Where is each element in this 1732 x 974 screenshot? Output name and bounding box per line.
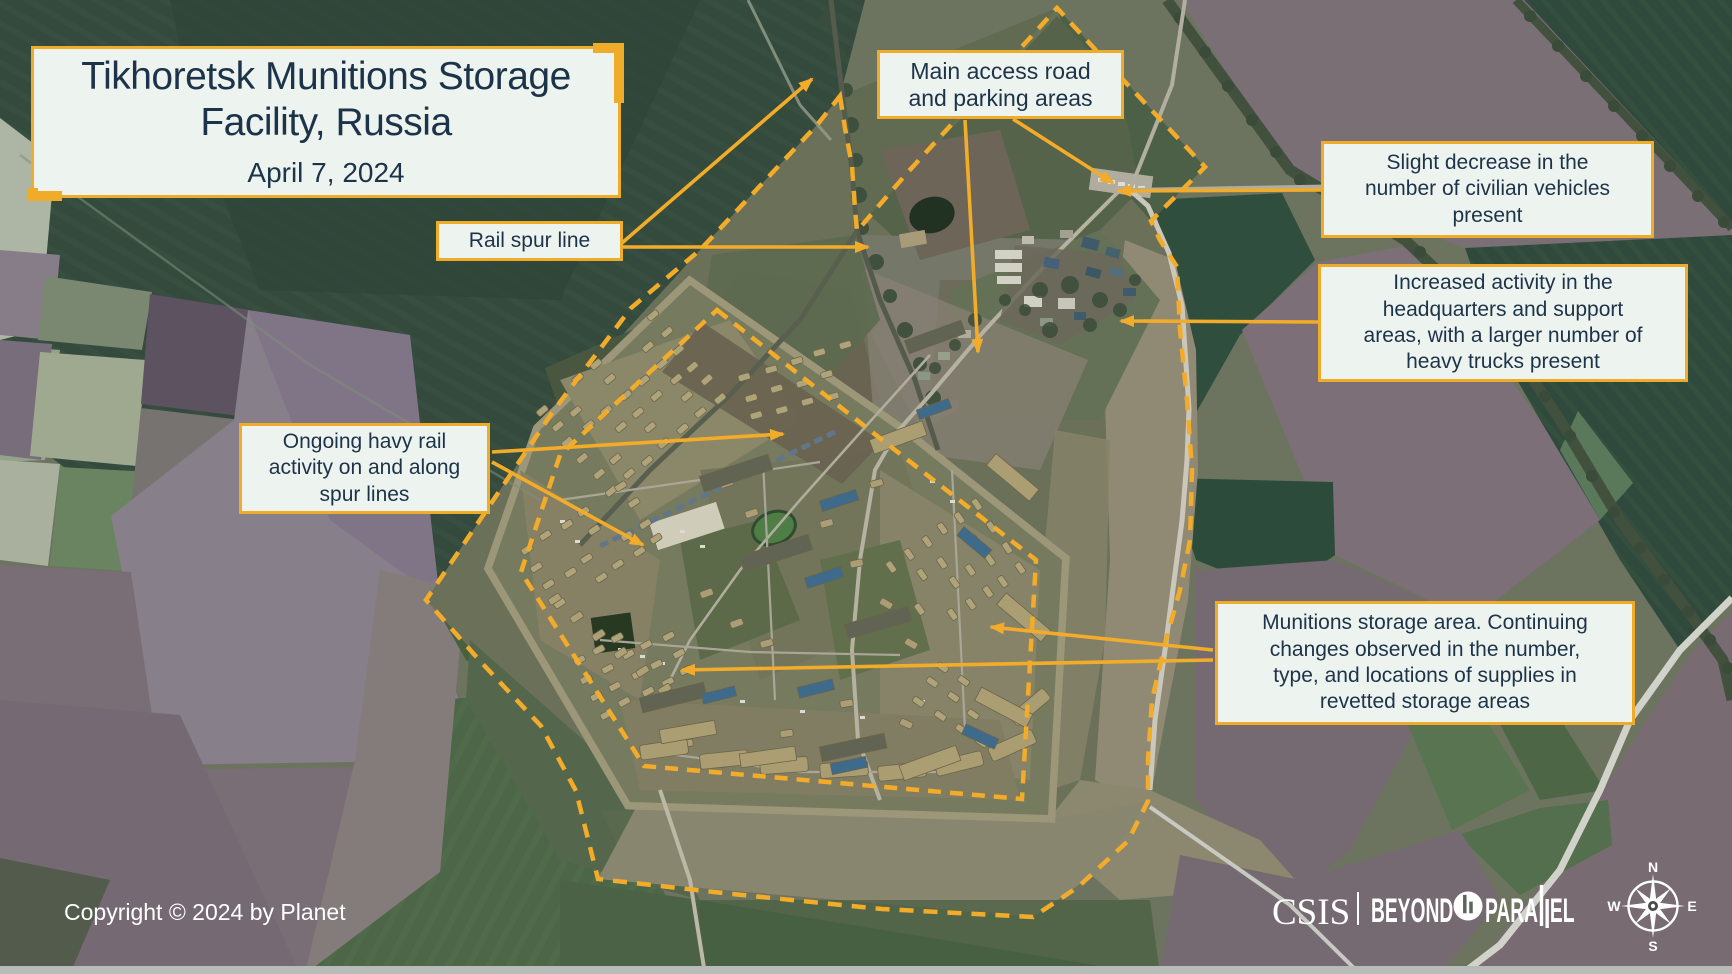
svg-text:W: W bbox=[1607, 898, 1621, 914]
svg-text:S: S bbox=[1648, 938, 1657, 954]
svg-text:E: E bbox=[1687, 898, 1696, 914]
svg-text:N: N bbox=[1648, 859, 1658, 875]
